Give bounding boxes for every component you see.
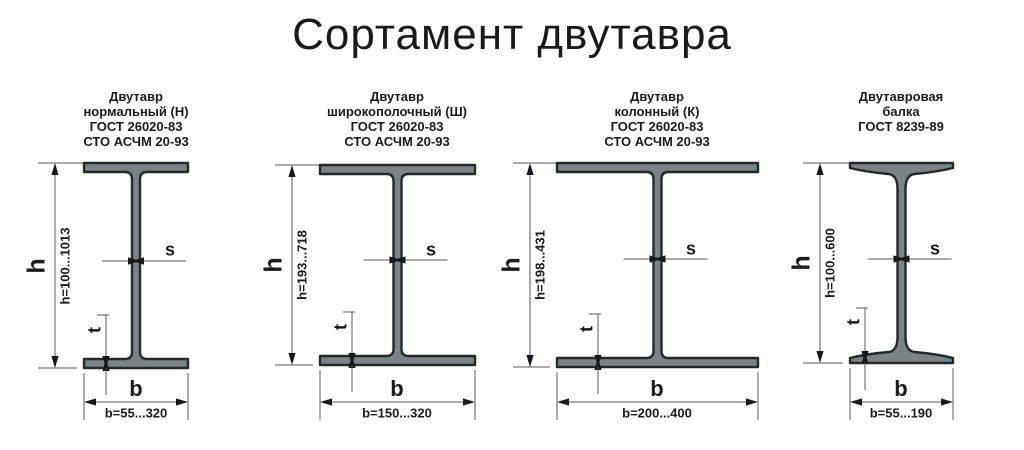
beam4-t-label: t (844, 319, 865, 325)
beam1-b-label: b (129, 376, 142, 402)
beam3-type-line: колонный (К) (542, 104, 772, 119)
beam1-type-line: Двутавр (21, 89, 251, 104)
beam2-type-line: широкополочный (Ш) (282, 104, 512, 119)
beam4-b-range: b=55...190 (870, 406, 933, 421)
beam1-s-label: s (165, 240, 175, 261)
beam3-t-label: t (577, 326, 598, 332)
beam1-b-range: b=55...320 (105, 406, 168, 421)
beam2-b-range: b=150...320 (362, 406, 432, 421)
beam3-type-line: Двутавр (542, 89, 772, 104)
beam-cross-section-diagrams (0, 0, 1024, 450)
beam2-h-range: h=193...718 (295, 230, 310, 300)
beam4-h-range: h=100...600 (823, 228, 838, 298)
beam1-standard: ГОСТ 26020-83 (21, 119, 251, 134)
beam4-type-line: балка (786, 104, 1016, 119)
beam2-h-label: h (260, 257, 289, 272)
beam1-t-label: t (85, 327, 106, 333)
beam3-h-range: h=198...431 (533, 230, 548, 300)
beam1-header: Двутавр нормальный (Н) ГОСТ 26020-83 СТО… (21, 89, 251, 149)
beam2-t-label: t (331, 324, 352, 330)
beam2-type-line: Двутавр (282, 89, 512, 104)
beam2-header: Двутавр широкополочный (Ш) ГОСТ 26020-83… (282, 89, 512, 149)
beam1-type-line: нормальный (Н) (21, 104, 251, 119)
beam4-b-label: b (894, 376, 907, 402)
beam3-standard: ГОСТ 26020-83 (542, 119, 772, 134)
beam3-header: Двутавр колонный (К) ГОСТ 26020-83 СТО А… (542, 89, 772, 149)
page-title: Сортамент двутавра (0, 10, 1024, 60)
beam1-h-label: h (23, 258, 52, 273)
beam4-type-line: Двутавровая (786, 89, 1016, 104)
beam4-standard: ГОСТ 8239-89 (786, 119, 1016, 134)
beam3-s-label: s (686, 239, 696, 260)
beam3-standard: СТО АСЧМ 20-93 (542, 134, 772, 149)
beam3-h-label: h (498, 257, 527, 272)
beam1-h-range: h=100...1013 (58, 228, 73, 305)
beam1-standard: СТО АСЧМ 20-93 (21, 134, 251, 149)
beam2-standard: ГОСТ 26020-83 (282, 119, 512, 134)
beam3-b-range: b=200...400 (622, 406, 692, 421)
beam3-b-label: b (650, 376, 663, 402)
beam4-s-label: s (930, 239, 940, 260)
beam4-header: Двутавровая балка ГОСТ 8239-89 (786, 89, 1016, 134)
beam2-standard: СТО АСЧМ 20-93 (282, 134, 512, 149)
beam2-b-label: b (390, 376, 403, 402)
beam2-s-label: s (426, 240, 436, 261)
ibeam-assortment-page: { "title": "Сортамент двутавра", "dimens… (0, 0, 1024, 450)
beam4-h-label: h (788, 255, 817, 270)
